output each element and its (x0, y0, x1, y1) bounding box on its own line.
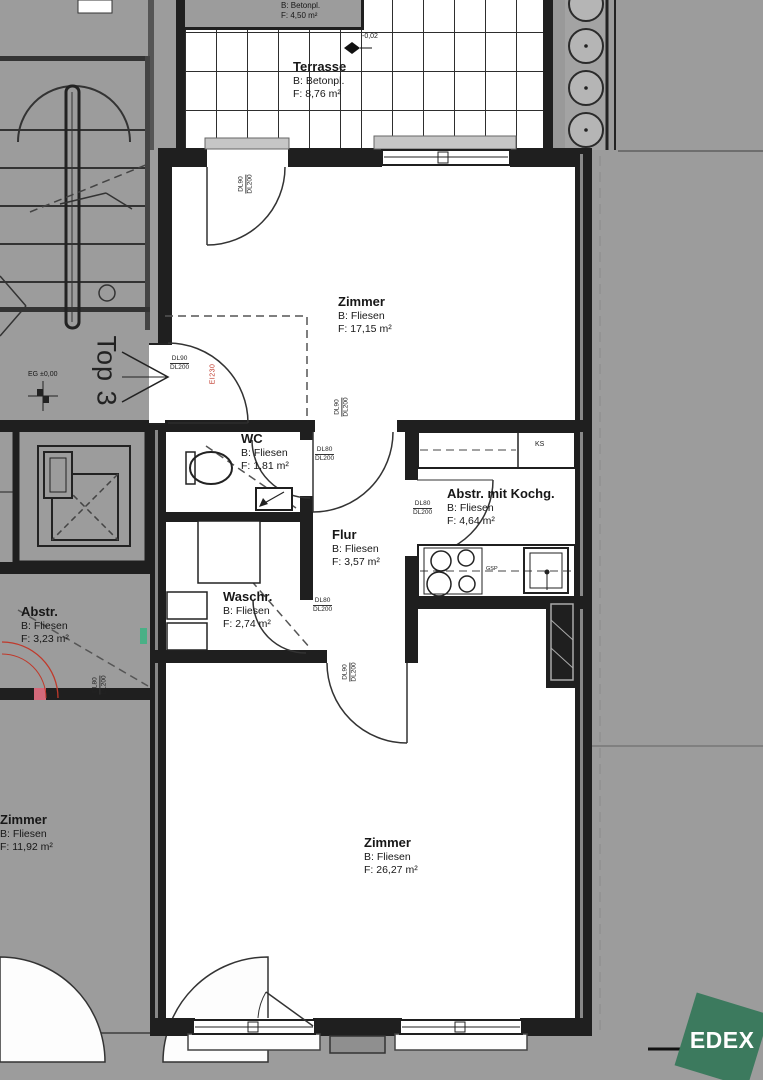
plan-geometry (0, 0, 763, 1080)
room-name: Terrasse (293, 59, 346, 75)
room-name: WC (241, 431, 289, 447)
flur-label: Flur B: Fliesen F: 3,57 m² (332, 527, 380, 570)
fridge-label: KS (535, 441, 544, 448)
room-name: Zimmer (364, 835, 418, 851)
room-surface: B: Fliesen (364, 851, 418, 865)
room-name: Abstr. mit Kochg. (447, 486, 555, 502)
terrasse-label: Terrasse B: Betonpl. F: 8,76 m² (293, 59, 346, 102)
toilet (186, 452, 232, 484)
laundry-door-label: DL80 DL200 (313, 597, 332, 614)
door-width: DL90 (341, 662, 350, 681)
door-width: DL80 (91, 675, 100, 694)
ground-level-label: EG ±0,00 (28, 371, 58, 378)
door-height: DL200 (313, 606, 332, 614)
room-area: F: 3,23 m² (21, 633, 69, 647)
wc-shaft (256, 488, 292, 510)
left-walls (0, 420, 165, 700)
door-width: DL80 (313, 597, 332, 606)
door-height: DL200 (343, 397, 351, 416)
room-area: F: 17,15 m² (338, 323, 392, 337)
room-surface: B: Fliesen (332, 543, 380, 557)
staircase (0, 0, 150, 336)
room-name: Flur (332, 527, 380, 543)
fire-rating-label: EI230 (210, 364, 217, 385)
gravel-strip (565, 0, 615, 150)
kitchen-counter-top (418, 432, 575, 468)
room-surface: B: Fliesen (21, 620, 69, 634)
edex-logo-text: EDEX (690, 1026, 755, 1053)
room-surface: B: Betonpl. (293, 75, 346, 89)
door-height: DL200 (413, 509, 432, 517)
room-surface: B: Fliesen (223, 605, 272, 619)
room-area: F: 8,76 m² (293, 88, 346, 102)
unit-label: Top 3 (91, 335, 122, 406)
door-width: DL80 (315, 446, 334, 455)
waschraum-label: Waschr. B: Fliesen F: 2,74 m² (223, 589, 272, 632)
zimmer-bottom-label: Zimmer B: Fliesen F: 26,27 m² (364, 835, 418, 878)
terrace-door-label: DL90 DL200 (237, 174, 254, 193)
terrace-walls (148, 0, 565, 150)
room-name: Zimmer (338, 294, 392, 310)
floor-plan: Terrasse B: Betonpl. F: 8,76 m² B: Beton… (0, 0, 763, 1080)
room-area: F: 26,27 m² (364, 864, 418, 878)
room-name: Waschr. (223, 589, 272, 605)
dishwasher-label: GSP (486, 566, 498, 572)
door-height: DL200 (315, 455, 334, 463)
terrace-level-marker (344, 42, 372, 54)
door-width: DL90 (237, 174, 246, 193)
door-width: DL80 (413, 500, 432, 509)
door-height: DL200 (101, 675, 109, 694)
abstellraum-label: Abstr. B: Fliesen F: 3,23 m² (21, 604, 69, 647)
flur-zimmer-door-label: DL90 DL200 (341, 662, 358, 681)
room-area: F: 11,92 m² (0, 841, 53, 855)
room-area: F: 4,64 m² (447, 515, 555, 529)
room-surface: B: Fliesen (0, 828, 53, 842)
elevator (0, 426, 165, 564)
door-width: DL90 (333, 397, 342, 416)
entrance-door-label: DL90 DL200 (170, 355, 189, 372)
door-height: DL200 (170, 364, 189, 372)
room-name: Zimmer (0, 812, 53, 828)
zimmer-flur-door-label: DL90 DL200 (333, 397, 350, 416)
terrace-level-label: -0,02 (362, 33, 378, 40)
room-name: Abstr. (21, 604, 69, 620)
door-width: DL90 (170, 355, 189, 364)
kitchen-door-label: DL80 DL200 (413, 500, 432, 517)
room-area: F: 2,74 m² (223, 618, 272, 632)
abstell-kueche-label: Abstr. mit Kochg. B: Fliesen F: 4,64 m² (447, 486, 555, 529)
zimmer-top-label: Zimmer B: Fliesen F: 17,15 m² (338, 294, 392, 337)
site-lines (0, 151, 763, 1033)
wc-door-label: DL80 DL200 (315, 446, 334, 463)
ground-level-marker (28, 381, 58, 411)
room-surface: B: Betonpl. (281, 1, 320, 11)
terrasse-upper-label: B: Betonpl. F: 4,50 m² (281, 1, 320, 22)
room-area: F: 4,50 m² (281, 11, 320, 21)
room-area: F: 3,57 m² (332, 556, 380, 570)
room-surface: B: Fliesen (241, 447, 289, 461)
zimmer-left-label: Zimmer B: Fliesen F: 11,92 m² (0, 812, 53, 855)
room-surface: B: Fliesen (338, 310, 392, 324)
abstellraum-door-label: DL80 DL200 (91, 675, 108, 694)
door-height: DL200 (247, 174, 255, 193)
wc-label: WC B: Fliesen F: 1,81 m² (241, 431, 289, 474)
door-height: DL200 (351, 662, 359, 681)
room-area: F: 1,81 m² (241, 460, 289, 474)
room-surface: B: Fliesen (447, 502, 555, 516)
